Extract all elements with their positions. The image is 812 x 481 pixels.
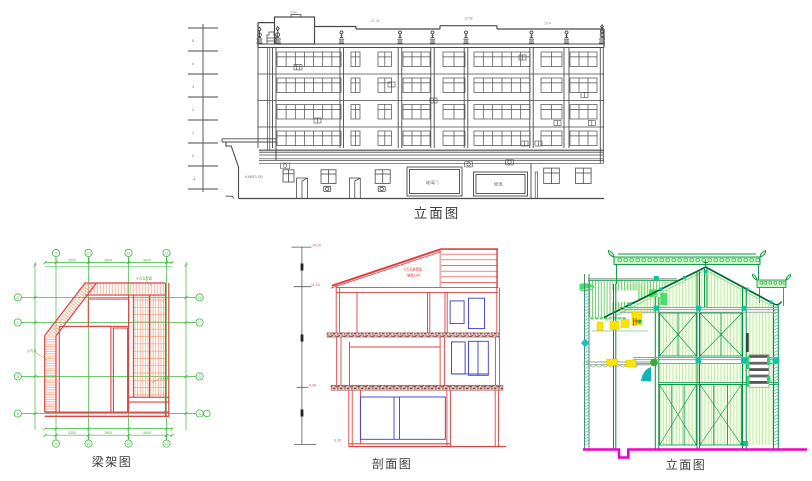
svg-text:9: 9 — [55, 442, 57, 446]
svg-text:小青瓦: 小青瓦 — [160, 376, 170, 381]
svg-text:-1: -1 — [192, 177, 195, 181]
svg-text:A: A — [198, 412, 201, 416]
svg-text:5: 5 — [192, 39, 194, 43]
svg-text:3300: 3300 — [68, 431, 76, 435]
svg-text:-1.20: -1.20 — [333, 439, 341, 443]
svg-text:C: C — [16, 321, 19, 325]
svg-text:C: C — [198, 321, 201, 325]
svg-text:21.24: 21.24 — [371, 19, 380, 23]
svg-text:12: 12 — [165, 251, 169, 255]
svg-text:小青瓦屋面: 小青瓦屋面 — [136, 276, 152, 281]
svg-text:10: 10 — [87, 442, 91, 446]
svg-text:12: 12 — [165, 442, 169, 446]
svg-text:立面图: 立面图 — [666, 457, 707, 472]
svg-text:玻璃门: 玻璃门 — [426, 179, 439, 186]
svg-text:3300: 3300 — [68, 258, 76, 262]
svg-text:14.10: 14.10 — [312, 243, 321, 247]
svg-text:3900: 3900 — [104, 258, 112, 262]
svg-text:B: B — [17, 375, 20, 379]
svg-text:11: 11 — [127, 442, 131, 446]
svg-text:3600: 3600 — [143, 258, 151, 262]
svg-text:梁架图: 梁架图 — [92, 454, 133, 469]
svg-text:A: A — [17, 412, 20, 416]
svg-text:小青瓦坡屋面: 小青瓦坡屋面 — [403, 267, 422, 272]
svg-text:小青瓦: 小青瓦 — [27, 348, 37, 353]
svg-text:2: 2 — [192, 108, 194, 112]
svg-text:0: 0 — [192, 154, 194, 158]
svg-text:1: 1 — [192, 131, 194, 135]
svg-text:4: 4 — [192, 62, 194, 66]
svg-text:15.4: 15.4 — [544, 22, 551, 26]
svg-text:6.68(F0.18): 6.68(F0.18) — [245, 175, 263, 179]
svg-text:3: 3 — [192, 85, 194, 89]
svg-text:11.10: 11.10 — [311, 283, 320, 287]
svg-text:4.40: 4.40 — [309, 384, 316, 388]
svg-text:3.60: 3.60 — [290, 10, 297, 14]
svg-text:12.48: 12.48 — [464, 17, 473, 21]
svg-text:11: 11 — [127, 251, 131, 255]
svg-text:B: B — [198, 375, 201, 379]
svg-text:3900: 3900 — [104, 431, 112, 435]
svg-text:立面图: 立面图 — [414, 206, 461, 221]
svg-text:坡度5.8%: 坡度5.8% — [407, 273, 421, 278]
svg-text:D: D — [198, 296, 201, 300]
svg-text:D: D — [16, 296, 19, 300]
svg-text:10: 10 — [87, 251, 91, 255]
svg-text:剖面图: 剖面图 — [372, 457, 413, 471]
svg-text:9: 9 — [55, 251, 57, 255]
svg-text:3600: 3600 — [143, 431, 151, 435]
svg-text:玻璃: 玻璃 — [494, 181, 502, 188]
